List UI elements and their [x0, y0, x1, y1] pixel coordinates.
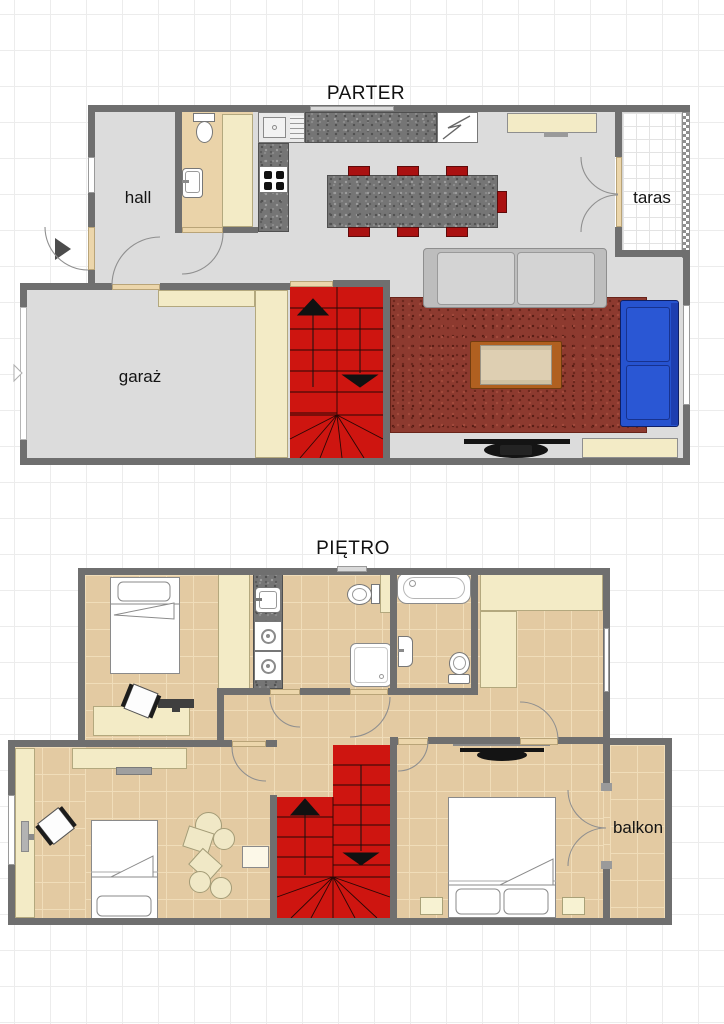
chaise-lounge [620, 300, 679, 427]
sofa-cushion [517, 252, 595, 305]
toilet-tank [371, 584, 380, 604]
media-cabinet [582, 438, 678, 458]
parter-title: PARTER [286, 83, 446, 105]
stairs-parter [290, 287, 383, 458]
wall [300, 688, 350, 695]
window [88, 157, 95, 193]
wall [558, 737, 603, 744]
wall [615, 227, 622, 257]
burner-icon [264, 182, 272, 190]
room-label-hall: hall [98, 188, 178, 208]
toilet-bowl-parter [196, 121, 213, 143]
dining-chair [446, 227, 468, 237]
toilet-seat-icon [352, 588, 367, 601]
toilet-seat-icon [453, 656, 466, 670]
kitchen-counter-top [305, 112, 437, 143]
shower-tray [350, 643, 392, 687]
dining-chair [446, 166, 468, 176]
wc-closet [222, 114, 253, 227]
kitchen-drainer-icon [290, 116, 304, 139]
wall [603, 861, 610, 918]
room-label-balcony: balkon [606, 818, 670, 838]
desk [72, 748, 187, 769]
pietro-title: PIĘTRO [273, 538, 433, 560]
wall [390, 737, 398, 745]
dryer-icon [254, 651, 282, 681]
dining-chair [348, 166, 370, 176]
dining-chair [397, 166, 419, 176]
burner-icon [276, 171, 284, 179]
fridge-icon [437, 112, 478, 143]
wall [217, 688, 270, 695]
window [337, 566, 367, 572]
room-label-terrace: taras [620, 188, 684, 208]
wall [8, 918, 672, 925]
door-threshold [520, 738, 558, 745]
balcony-door-jamb [601, 783, 612, 791]
wall [428, 737, 520, 744]
sideboard [507, 113, 597, 133]
door-threshold [182, 227, 223, 233]
living-floor-patch [615, 257, 683, 290]
pouf [189, 871, 211, 893]
dining-island [327, 175, 498, 228]
bathroom-faucet-icon [398, 649, 404, 652]
wall [95, 283, 112, 290]
dining-chair [497, 191, 507, 213]
wall [20, 283, 95, 290]
bathtub-drain-icon [409, 580, 416, 587]
nightstand [562, 897, 585, 915]
garage-cabinet-top [158, 290, 255, 307]
single-bed [110, 577, 180, 674]
chaise-cushion [626, 365, 670, 420]
sofa [423, 248, 607, 308]
chaise-cushion [626, 307, 670, 362]
entry-door-threshold [88, 227, 95, 270]
window [683, 305, 690, 405]
wardrobe [480, 611, 517, 688]
monitor-icon [21, 821, 29, 852]
dining-chair [348, 227, 370, 237]
wc-sink-faucet-icon [182, 180, 189, 183]
toilet-tank [448, 674, 470, 684]
door-threshold [232, 741, 266, 747]
stairs-pietro [277, 745, 390, 918]
dryer-dot-icon [266, 664, 270, 668]
wall [388, 688, 478, 695]
entry-arrow-icon [55, 238, 71, 260]
pouf [213, 828, 235, 850]
wall [160, 283, 290, 290]
wall [390, 568, 397, 690]
double-bed [448, 797, 556, 918]
window [8, 795, 15, 865]
laundry-faucet-icon [255, 598, 262, 601]
room-label-garage: garaż [100, 367, 180, 387]
chaise-backrest [671, 303, 678, 425]
washer-icon [254, 621, 282, 651]
office-chair-icon [118, 680, 164, 722]
wall [383, 287, 390, 458]
monitor-stand-icon [172, 708, 180, 712]
window [604, 628, 609, 692]
burner-icon [264, 171, 272, 179]
wardrobe [218, 573, 250, 692]
pouf [210, 877, 232, 899]
balcony-door-jamb [601, 861, 612, 869]
single-bed [91, 820, 158, 920]
door-threshold [350, 689, 388, 695]
wall [175, 112, 182, 233]
terrace-floor [622, 112, 682, 257]
wall [270, 795, 277, 918]
sideboard-handle-icon [544, 132, 568, 137]
wall [603, 738, 672, 745]
tv-icon [458, 434, 576, 460]
window [310, 106, 394, 111]
monitor-icon [116, 767, 152, 775]
office-chair-icon [34, 806, 78, 846]
door-threshold [270, 689, 300, 695]
coffee-table [470, 341, 562, 389]
wall [78, 568, 85, 747]
wardrobe [480, 573, 603, 611]
door-threshold [398, 738, 428, 745]
wall [615, 112, 622, 157]
wall [471, 568, 478, 695]
wall [390, 745, 397, 918]
stove-unit [259, 166, 288, 193]
garage-door-marker-icon [12, 363, 24, 383]
burner-icon [276, 182, 284, 190]
washer-dot-icon [266, 634, 270, 638]
wall [615, 250, 690, 257]
wall [266, 740, 277, 747]
terrace-edge-hatch [682, 112, 690, 258]
wall [20, 458, 690, 465]
bathtub [397, 572, 471, 604]
dining-chair [397, 227, 419, 237]
wall [8, 740, 85, 747]
sofa-cushion [437, 252, 515, 305]
shower-drain-icon [379, 674, 384, 679]
wall [85, 740, 232, 747]
door-threshold [112, 284, 160, 290]
tv-icon [456, 745, 548, 763]
coffee-table-top [480, 345, 552, 385]
floor-plan-page: PARTER [0, 0, 724, 1024]
kitchen-sink-drain-icon [272, 125, 277, 130]
side-table [242, 846, 269, 868]
wall [333, 280, 390, 287]
garage-cabinet-right [255, 290, 288, 458]
nightstand [420, 897, 443, 915]
door-threshold [290, 281, 333, 287]
wall [223, 227, 258, 233]
